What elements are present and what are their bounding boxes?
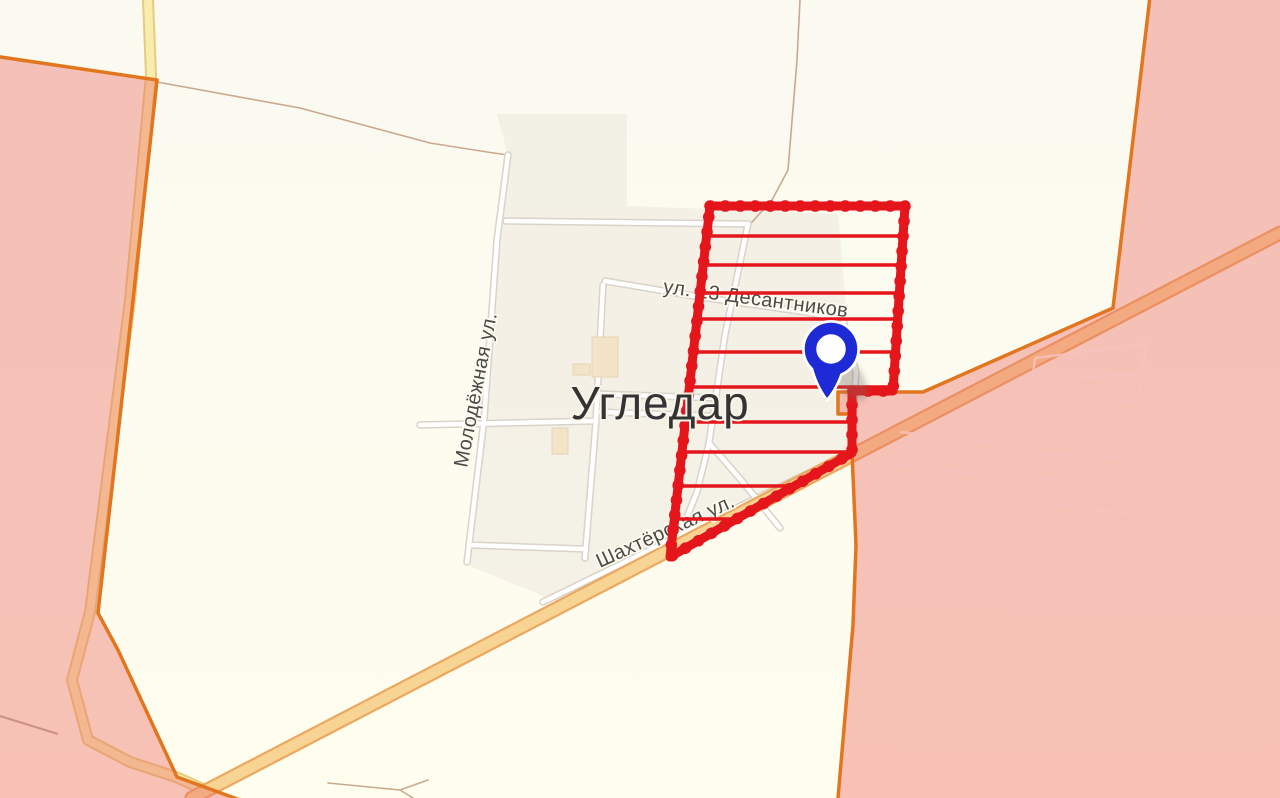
pin-ring	[811, 329, 852, 370]
map-viewport[interactable]: ул. 13 Десантников Молодёжная ул. Шахтёр…	[0, 0, 1280, 798]
map-canvas[interactable]: ул. 13 Десантников Молодёжная ул. Шахтёр…	[0, 0, 1280, 798]
city-label: Угледар	[570, 377, 749, 429]
